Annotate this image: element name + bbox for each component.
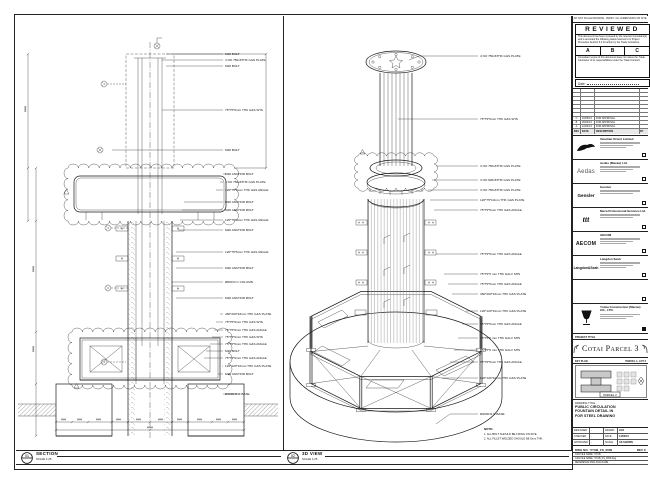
top-flange <box>366 51 426 73</box>
consultant-name: Meca Professional Services Ltd. <box>600 210 647 213</box>
address-text-placeholder <box>600 142 640 143</box>
address-text-placeholder <box>600 241 633 242</box>
contractor-logo-icon <box>573 304 599 333</box>
stamp-checkbox <box>642 327 646 331</box>
reviewed-stamp: REVIEWED This document has been reviewed… <box>575 24 650 78</box>
leader-label: 75*75*6mm THK G&S ANGLE <box>480 282 522 286</box>
view-title: SECTION <box>36 452 58 457</box>
rev-header-date: DATE <box>581 129 595 134</box>
iso-view-panel: 4 NO 750x6THK G&S PLATE 75*75*6mm THK G&… <box>284 16 572 450</box>
field-label: DATE <box>604 434 618 439</box>
drawing-title-line: FOR STEEL DRAWING <box>575 414 646 419</box>
rev-header-id: REV <box>573 129 581 134</box>
map-tag: PARCEL 3 <box>603 393 617 397</box>
leader-label: M20 ANCHOR BOLT <box>225 372 254 376</box>
leader-label: 460*200*16mm THK G&S PLATE <box>480 292 526 296</box>
reviewed-title: REVIEWED <box>576 25 649 35</box>
leader-label: 4 NO 600x6THK G&S PLATE <box>480 178 521 182</box>
signoff-fields: DESIGNED - DRAWN LEO CHECKED - DATE 14/0… <box>573 428 648 446</box>
iso-drawing: 4 NO 750x6THK G&S PLATE 75*75*6mm THK G&… <box>284 16 572 449</box>
leader-label: 4 NO 750x6THK G&S PLATE <box>480 188 521 192</box>
leader-label: M20 ANCHOR BOLT <box>225 172 254 176</box>
dwg-rev: REV C <box>637 448 646 452</box>
stamp-checkbox <box>642 201 646 205</box>
ornament-right-icon <box>642 344 648 354</box>
view-scale: SCALE 1:25 <box>302 458 323 461</box>
drawing-sheet-page: M20 BOLT 4 NO 750x6THK G&S PLATE M20 BOL… <box>0 0 650 488</box>
key-plan-parcel: PARCEL 1, LOT 2 <box>625 360 646 364</box>
rev-by <box>640 117 648 120</box>
date-blank-line <box>587 82 639 85</box>
bolt-symbols <box>97 81 128 365</box>
note-title: NOTE: <box>484 427 493 431</box>
leader-label: 120*75*6mm THK G&S ANGLE <box>225 188 268 192</box>
address-text-placeholder <box>600 171 626 172</box>
project-name: Cotai Parcel 3 <box>582 344 639 353</box>
rev-id: C <box>573 117 581 120</box>
leader-label: 120*75*10mm THK G&S PLATE <box>480 198 524 202</box>
leader-label: 460*200*16mm THK G&S PLATE <box>225 312 271 316</box>
leader-label: 120*75*6mm THK G&S ANGLE <box>225 250 268 254</box>
consultant-block-meca: ttt Meca Professional Services Ltd. <box>573 208 648 232</box>
leader-label: 120*120*10mm THK G&S PLATE <box>480 309 526 313</box>
meca-logo: ttt <box>573 208 599 231</box>
rev-date: 12/04/13 <box>581 125 595 128</box>
field-value: AS SHOWN <box>618 440 648 446</box>
leader-label: M20 ANCHOR BOLT <box>225 208 254 212</box>
reviewed-body-1: This document has been reviewed by the r… <box>576 35 649 46</box>
caption-rule <box>325 456 569 457</box>
consultant-name: Langdon Seah <box>600 258 647 261</box>
leader-label: 75*75*6 mm THK GALV SHS <box>480 348 520 352</box>
project-title-block: Cotai Parcel 3 <box>573 340 648 358</box>
venetian-lion-logo-icon <box>573 136 599 159</box>
address-text-placeholder <box>600 316 633 317</box>
ornament-left-icon <box>573 344 579 354</box>
leader-label: 4 NO 750x6THK G&S PLATE <box>225 58 266 62</box>
leader-label: 120*75*6mm THK G&S ANGLE <box>225 218 268 222</box>
leader-label: 75*75*6mm THK G&S ANGLE <box>480 208 522 212</box>
rev-id: A <box>573 125 581 128</box>
status-options: A B C <box>576 46 649 56</box>
address-text-placeholder <box>600 217 633 218</box>
rev-date: 26/04/13 <box>581 121 595 124</box>
drawing-title-block: DRAWING TITLE : PUBLIC CIRCULATION FOUNT… <box>573 400 648 428</box>
leader-label: M20 BOLT <box>225 64 240 68</box>
leader-label: Ø4000 R.C BASE <box>480 412 505 416</box>
field-value: 14/03/13 <box>618 434 648 439</box>
iso-caption: 02 3D VIEW SCALE 1:25 <box>287 452 323 464</box>
address-text-placeholder <box>600 214 640 215</box>
leader-label: M20 ANCHOR BOLT <box>225 296 254 300</box>
rev-by <box>640 125 648 128</box>
leader-label: 4 NO 750x6THK G&S PLATE <box>480 164 521 168</box>
field-value: - <box>590 428 604 433</box>
rev-desc: FOR APPROVAL <box>595 121 640 124</box>
leader-label: 75*75*6mm THK G&S SHS <box>225 320 263 324</box>
leader-label: M20 ANCHOR BOLT <box>225 266 254 270</box>
bolt-symbol <box>154 38 162 49</box>
notes-block: NOTE: 1. ALL BOLT SHOULD BE FIXING ON SI… <box>484 427 543 441</box>
field-label: SCALE <box>604 440 618 446</box>
rev-by <box>640 121 648 124</box>
address-text-placeholder <box>600 169 633 170</box>
leader-label: 75*75*6 mm THK GALV SHS <box>480 272 520 276</box>
leader-label: 75*75*6mm THK G&S ANGLE <box>480 252 522 256</box>
consultant-name: Venetian Orient Limited <box>600 138 647 141</box>
address-text-placeholder <box>600 243 626 244</box>
consultant-name: Aedas (Macau) Ltd. <box>600 162 647 165</box>
anchor-frame <box>74 338 220 388</box>
consultant-name: Gensler <box>600 186 647 189</box>
consultant-block-gensler: Gensler Gensler <box>573 184 648 208</box>
aecom-logo: AECOM <box>573 232 599 255</box>
leader-label: 75*75*6mm THK G&S ANGLE <box>480 360 522 364</box>
sheet-top-note: DO NOT SCALE DRAWING. VERIFY ALL DIMENSI… <box>573 16 648 23</box>
address-text-placeholder <box>600 145 633 146</box>
field-label: APPROVED <box>573 440 590 446</box>
status-option-a: A <box>576 47 601 55</box>
rev-header-desc: DESCRIPTION <box>595 129 640 134</box>
field-value: - <box>590 434 604 439</box>
gensler-logo: Gensler <box>573 184 599 207</box>
detail-bubble-icon: 01 <box>21 452 33 464</box>
address-text-placeholder <box>600 265 633 266</box>
leader-label: 75*75*6mm THK G&S ANGLE <box>225 342 267 346</box>
detail-bubble-icon: 02 <box>287 452 299 464</box>
leader-label: Ø600 R.C COLUMN <box>225 280 253 284</box>
contractor-name: Yodea Construction (Macau) CO., LTD. <box>600 306 647 313</box>
address-text-placeholder <box>600 238 640 239</box>
leader-label: M20 ANCHOR BOLT <box>225 200 254 204</box>
note-line: 2. ALL FILLET WELDED SHOULD BE 6mm THK. <box>484 437 543 441</box>
caption-rule <box>57 456 281 457</box>
sheet-inner-border <box>16 464 648 465</box>
steel-cylinder <box>355 199 437 348</box>
consultant-block-empty <box>573 280 648 304</box>
section-view-panel: M20 BOLT 4 NO 750x6THK G&S PLATE M20 BOL… <box>16 16 284 450</box>
stamp-checkbox <box>642 225 646 229</box>
leader-labels: M20 BOLT 4 NO 750x6THK G&S PLATE M20 BOL… <box>225 52 271 396</box>
address-text-placeholder <box>600 193 633 194</box>
address-text-placeholder <box>600 147 626 148</box>
address-text-placeholder <box>600 262 640 263</box>
stamp-checkbox <box>642 177 646 181</box>
field-label: DRAWN <box>604 428 618 433</box>
address-text-placeholder <box>600 314 640 315</box>
rev-desc: FOR APPROVAL <box>595 117 640 120</box>
bubble-number: 01 <box>25 454 29 458</box>
stamp-checkbox <box>642 153 646 157</box>
address-text-placeholder <box>600 267 626 268</box>
shaft-tubes <box>380 73 412 166</box>
stamp-checkbox <box>642 249 646 253</box>
leader-label: 75*75*6mm THK G&S SHS <box>225 335 263 339</box>
dwg-number: DWG NO : 5YUB_FS_0000 <box>575 448 612 452</box>
leader-label: M20 BOLT <box>225 52 240 56</box>
reference-dwg-row: REFERENCE DWG FILE NAME : <box>573 461 648 465</box>
rev-header-by: BY <box>640 129 648 134</box>
leader-label: Ø4000 R.C BASE <box>225 392 250 396</box>
panel-divider-line <box>16 450 572 451</box>
rev-date: 10/05/13 <box>581 117 595 120</box>
rev-desc: FOR APPROVAL <box>595 125 640 128</box>
title-block-strip: DO NOT SCALE DRAWING. VERIFY ALL DIMENSI… <box>572 16 648 470</box>
bubble-number: 02 <box>291 454 295 458</box>
consultant-block-venetian: Venetian Orient Limited <box>573 136 648 160</box>
rev-id: B <box>573 121 581 124</box>
address-text-placeholder <box>600 190 640 191</box>
key-plan-map: PARCEL 3 <box>573 364 648 400</box>
address-text-placeholder <box>600 318 626 319</box>
note-line: 1. ALL BOLT SHOULD BE FIXING ON SITE. <box>484 432 538 436</box>
leader-labels: 4 NO 750x6THK G&S PLATE 75*75*6mm THK G&… <box>480 54 526 416</box>
stamp-checkbox <box>642 273 646 277</box>
section-drawing: M20 BOLT 4 NO 750x6THK G&S PLATE M20 BOL… <box>16 16 283 449</box>
leader-label: M20 BOLT <box>225 148 240 152</box>
field-value: LEO <box>618 428 648 433</box>
status-option-b: B <box>601 47 626 55</box>
revision-header-row: REV DATE DESCRIPTION BY <box>573 129 648 134</box>
revision-cloud-flange <box>64 164 238 225</box>
contractor-block: Yodea Construction (Macau) CO., LTD. <box>573 304 648 334</box>
leader-label: 120*120*10mm THK G&S PLATE <box>480 376 526 380</box>
leader-label: M20 BOLT <box>225 349 240 353</box>
revision-table: C 10/05/13 FOR APPROVAL B 26/04/13 FOR A… <box>573 88 648 136</box>
consultant-block-aedas: Aedas Aedas (Macau) Ltd. <box>573 160 648 184</box>
site-map: PARCEL 3 <box>575 365 647 398</box>
leader-label: M20 ANCHOR BOLT <box>225 228 254 232</box>
reviewed-body-2: Consultant review of this document does … <box>576 56 649 64</box>
aedas-logo: Aedas <box>573 160 599 183</box>
field-label: CHECKED <box>573 434 590 439</box>
consultant-block-langdon-seah: Langdon&Seah Langdon Seah <box>573 256 648 280</box>
view-scale: SCALE 1:25 <box>36 458 58 461</box>
consultant-name: AECOM <box>600 234 647 237</box>
leader-label: 4 NO 750x6THK G&S PLATE <box>225 180 266 184</box>
leader-label: 75*75*6mm THK G&S ANGLE <box>225 356 267 360</box>
leader-label: 75*75*6mm THK G&S ANGLE <box>225 328 267 332</box>
stamp-checkbox <box>642 297 646 301</box>
consultant-block-aecom: AECOM AECOM <box>573 232 648 256</box>
signoff-row: APPROVED - SCALE AS SHOWN <box>573 440 648 446</box>
leader-label: 4 NO 750x6THK G&S PLATE <box>480 54 521 58</box>
address-text-placeholder <box>600 166 640 167</box>
field-label: DESIGNED <box>573 428 590 433</box>
field-value: - <box>590 440 604 446</box>
view-title: 3D VIEW <box>302 452 323 457</box>
leader-label: 75*75*6 mm THK GALV SHS <box>480 336 520 340</box>
leader-label: 75*75*6mm THK G&S SHS <box>480 117 518 121</box>
leader-label: 75*75*6mm THK G&S ANGLE <box>480 322 522 326</box>
leader-label: 75*75*6mm THK G&S SHS <box>225 108 263 112</box>
langdon-seah-logo: Langdon&Seah <box>573 256 599 279</box>
status-option-c: C <box>625 47 649 55</box>
date-label: Date : <box>578 82 587 86</box>
drawing-sheet: M20 BOLT 4 NO 750x6THK G&S PLATE M20 BOL… <box>14 14 648 470</box>
section-caption: 01 SECTION SCALE 1:25 <box>21 452 58 464</box>
dwg-number-row: DWG NO : 5YUB_FS_0000 REV C <box>573 446 648 453</box>
leader-label: 120*120*10mm THK G&S PLATE <box>225 364 271 368</box>
key-plan-label: KEY PLAN <box>575 360 588 364</box>
stamp-date-row: Date : <box>575 79 650 87</box>
